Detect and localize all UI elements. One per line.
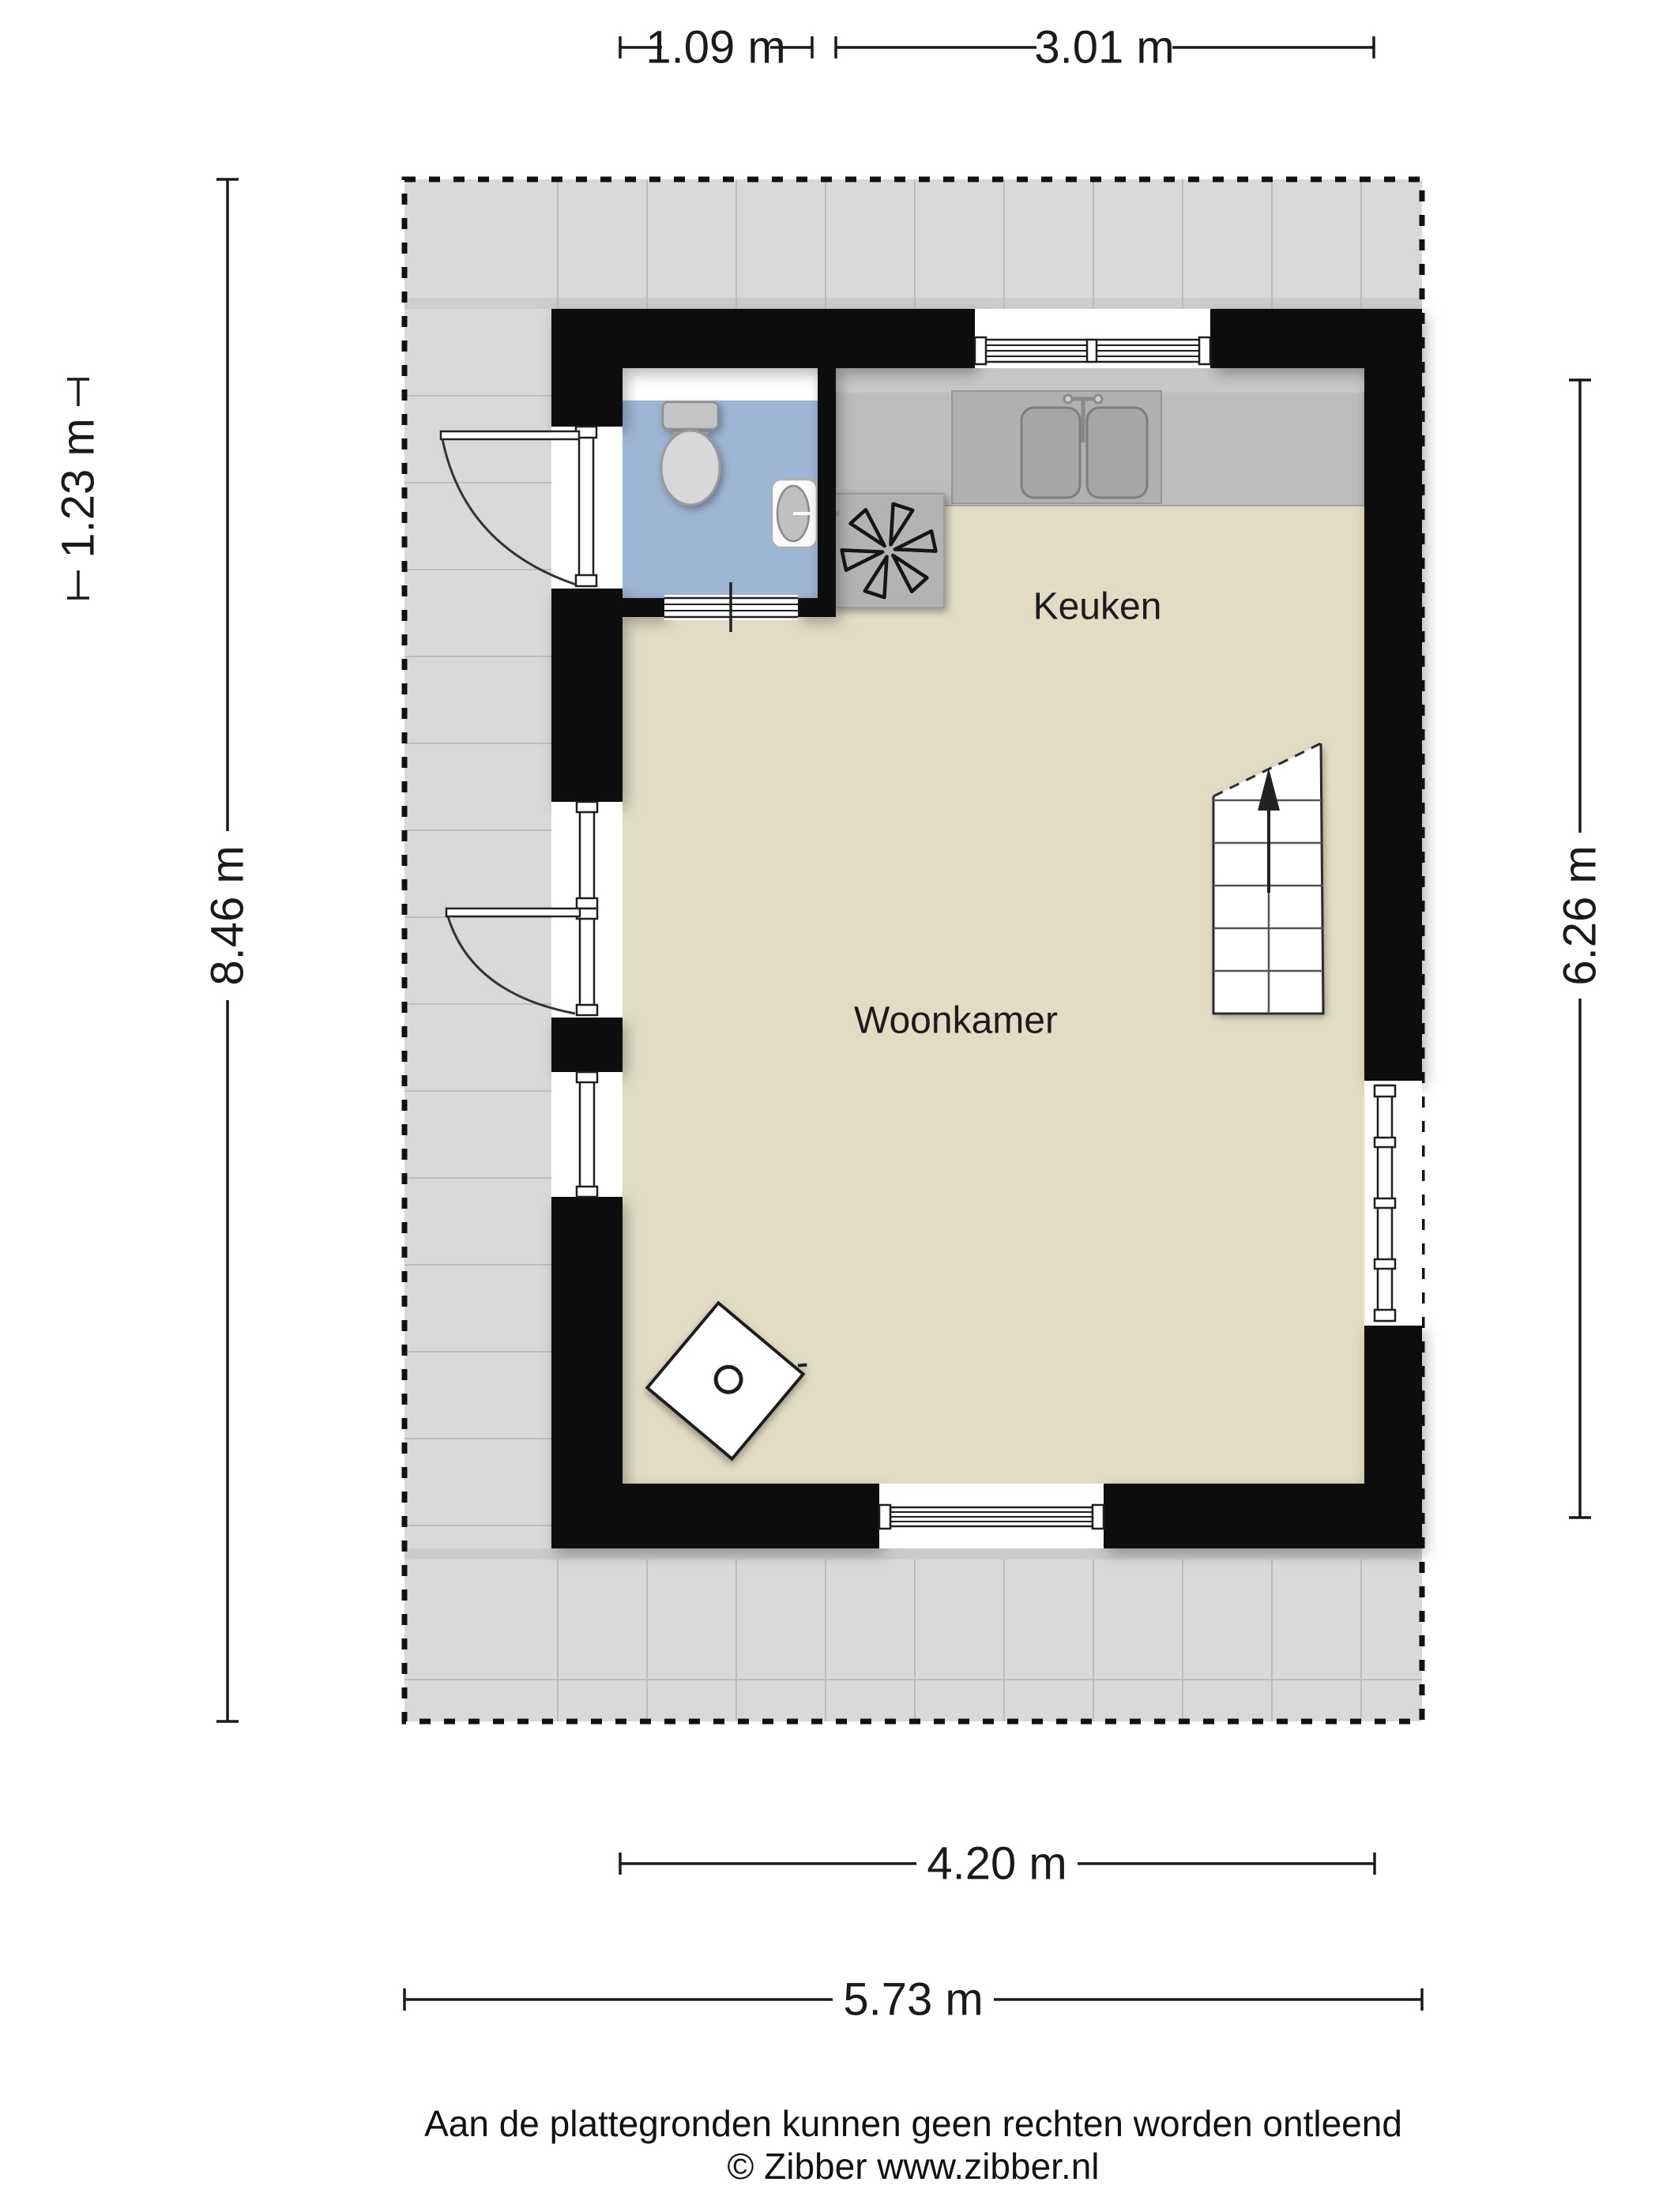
wall-bottom-right: [1104, 1484, 1422, 1548]
wall-left-seg4: [551, 1197, 623, 1484]
room-label-woonkamer: Woonkamer: [854, 1000, 1058, 1042]
wall-bottom-left: [551, 1484, 879, 1548]
dim-top-left: 1.09 m: [645, 22, 785, 73]
dim-bottom-inner: 4.20 m: [927, 1838, 1066, 1890]
dim-bottom-outer: 5.73 m: [843, 1974, 983, 2026]
dim-top-right: 3.01 m: [1034, 22, 1174, 73]
footer-disclaimer: Aan de plattegronden kunnen geen rechten…: [424, 2103, 1402, 2144]
window-right: [1364, 1081, 1422, 1326]
door-leaf: [446, 908, 580, 916]
footer-copyright: © Zibber www.zibber.nl: [727, 2146, 1099, 2187]
wall-top-right-segment: [1210, 309, 1422, 368]
window-kitchen-top: [975, 309, 1210, 368]
kitchen-sink-basin-right: [1087, 408, 1147, 498]
kitchen-counter-backsplash: [836, 368, 1364, 393]
window-left-1: [551, 802, 623, 908]
floorplan-canvas: Keuken Woonkamer 1.09 m 3.01 m 1.23 m 8.…: [0, 0, 1659, 2212]
wall-right-upper: [1364, 368, 1422, 1081]
room-label-keuken: Keuken: [1033, 586, 1162, 628]
window-bottom: [879, 1484, 1104, 1548]
window-left-2: [551, 1072, 623, 1197]
wall-left-seg1: [551, 309, 623, 427]
door-leaf: [441, 431, 579, 439]
wall-bathroom-bottom-left: [623, 598, 664, 617]
kitchen-sink-basin-left: [1021, 408, 1080, 498]
terrace-left-strip: [404, 309, 551, 1548]
terrace-bottom-shade: [404, 1548, 1422, 1559]
dim-right: 6.26 m: [1555, 845, 1606, 985]
wall-left-seg2: [551, 589, 623, 802]
bathroom: [623, 368, 839, 598]
wall-left-seg3: [551, 1018, 623, 1072]
wall-bathroom-right: [818, 368, 836, 617]
bathroom-top-strip: [623, 368, 818, 401]
wall-bathroom-bottom-right: [798, 598, 836, 617]
hob: [832, 493, 946, 608]
wall-right-lower: [1364, 1326, 1422, 1484]
toilet-icon: [661, 402, 720, 505]
dim-left-full: 8.46 m: [202, 845, 254, 985]
dim-left-upper: 1.23 m: [53, 418, 104, 558]
